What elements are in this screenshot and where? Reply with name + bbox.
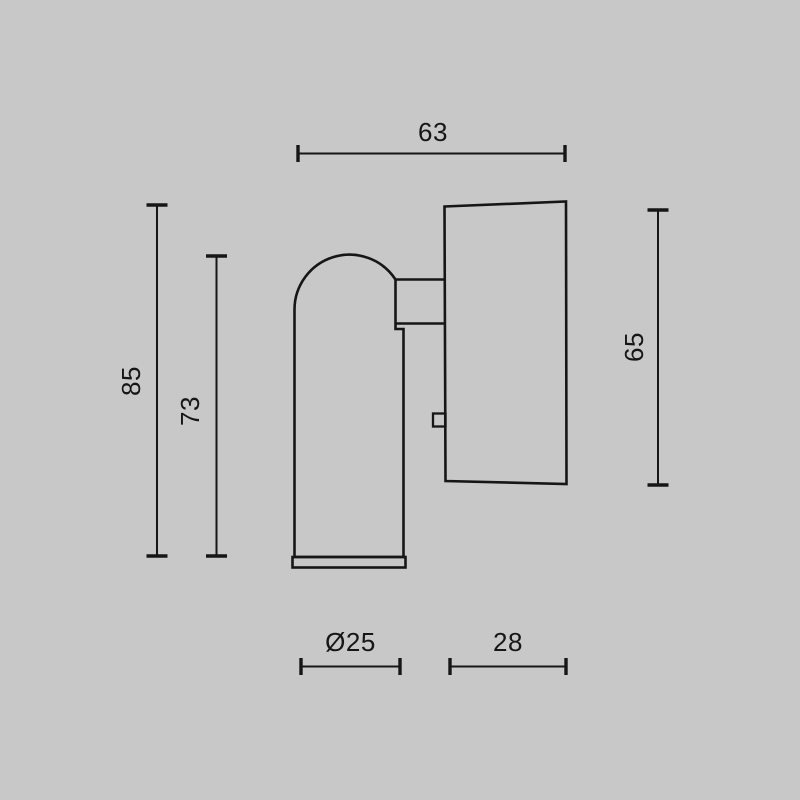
dimension-height-head: 73	[175, 256, 227, 556]
dimension-height-overall: 85	[116, 205, 168, 556]
lamp-outline	[293, 202, 567, 568]
dimension-width-overall: 63	[298, 117, 565, 162]
lamp-head-rim	[293, 557, 406, 568]
dimension-label-width-overall: 63	[418, 117, 448, 147]
dimension-height-base: 65	[619, 210, 669, 485]
dimension-label-height-base: 65	[619, 332, 649, 362]
wall-base-outline	[445, 202, 567, 485]
dimension-label-height-head: 73	[175, 396, 205, 426]
lamp-head-outline	[294, 255, 403, 557]
connecting-arm-outline	[396, 280, 446, 324]
dimension-label-height-overall: 85	[116, 366, 146, 396]
adjustment-knob	[433, 414, 446, 427]
wall-lamp-dimension-drawing: 63 85 73 65 Ø25	[0, 0, 800, 800]
technical-drawing-canvas: 63 85 73 65 Ø25	[0, 0, 800, 800]
dimension-head-diameter: Ø25	[301, 627, 400, 675]
dimension-label-base-depth: 28	[493, 627, 523, 657]
dimension-label-head-diameter: Ø25	[325, 627, 376, 657]
dimension-base-depth: 28	[450, 627, 566, 675]
